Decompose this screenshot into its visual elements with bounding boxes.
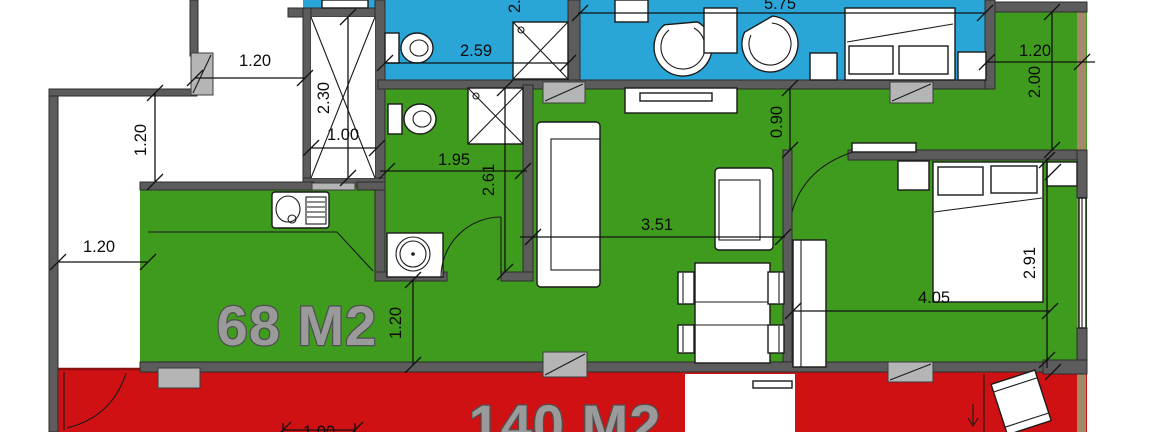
wall-kitchen-top-left — [140, 182, 314, 190]
dimension-label: 5.75 — [764, 0, 796, 13]
dimension-label: 1.95 — [438, 151, 470, 169]
basin-drain — [411, 252, 415, 256]
terrace-bench — [753, 381, 792, 388]
washbasin — [387, 233, 443, 277]
dining-table — [695, 263, 770, 363]
wall-bath-b-jamb — [501, 272, 533, 281]
sink-top-sliver — [322, 0, 368, 8]
window-sill-living-south — [543, 352, 587, 377]
toilet — [385, 33, 433, 63]
dimension-left-height: 1.20 — [132, 85, 163, 190]
dimension-label: 4.05 — [918, 289, 950, 307]
bed-b — [933, 162, 1043, 302]
armchair — [715, 168, 773, 250]
dimension-label: 2. — [506, 0, 524, 13]
pillow — [991, 166, 1037, 193]
dimension-label: 3.51 — [641, 216, 673, 234]
window-sill-dining-south — [888, 362, 933, 382]
door-leaf — [852, 143, 916, 152]
door-threshold-living — [543, 82, 585, 103]
tv-stand — [625, 88, 737, 113]
dining-chair — [678, 325, 694, 353]
tv-screen — [640, 93, 712, 101]
wardrobe — [793, 240, 826, 367]
toilet — [388, 104, 436, 134]
wall-top-stub — [190, 0, 198, 56]
area-label-terrace: 140 M2 — [469, 393, 662, 432]
wall-top-left — [49, 89, 197, 96]
nightstand-right — [958, 52, 986, 80]
dimension-label: 1.20 — [1019, 42, 1051, 60]
nightstand-left — [810, 53, 837, 80]
toilet-tank — [385, 33, 399, 63]
nightstand-left — [898, 161, 929, 190]
dimension-label: 2.00 — [1026, 66, 1044, 98]
pillow — [938, 167, 983, 195]
wall-left-outer — [49, 89, 58, 432]
side-table — [704, 8, 737, 53]
dining-chair — [768, 325, 784, 353]
dimension-label: 1.20 — [387, 307, 405, 339]
dimension-label: 0.90 — [768, 106, 786, 138]
wall-kitchen-top-right — [357, 182, 385, 190]
pillow — [849, 46, 893, 74]
wall-right-stub-top — [1077, 150, 1087, 198]
floor-plan-svg: 1.20 1.20 2.30 1.00 2.59 2. 5.75 1.95 — [0, 0, 1172, 432]
bed-a — [845, 8, 955, 80]
sofa — [537, 122, 600, 287]
console-table — [615, 0, 648, 22]
kitchen-sink — [272, 192, 329, 228]
floor-plan: 1.20 1.20 2.30 1.00 2.59 2. 5.75 1.95 — [0, 0, 1172, 432]
dining-chair — [678, 272, 694, 304]
sofa-body — [537, 122, 600, 287]
dimension-label: 1.20 — [83, 238, 115, 256]
toilet-tank — [388, 104, 402, 134]
dimension-label: 2.61 — [480, 164, 498, 196]
dimension-label: 2.91 — [1021, 247, 1039, 279]
area-label-green-unit: 68 M2 — [217, 294, 378, 357]
window-bedroom-right — [1079, 198, 1086, 328]
shower — [468, 88, 523, 144]
wall-top-right — [995, 2, 1087, 12]
dining-chair — [768, 272, 784, 304]
dimension-label: 1.00 — [327, 126, 359, 144]
wall-bottom-right-corner — [1043, 360, 1087, 374]
dimension-bath-a-height-partial: 2. — [506, 0, 524, 13]
pillow — [899, 46, 948, 74]
wall-bottom — [140, 362, 1087, 372]
wall-shaft-right — [375, 0, 385, 281]
wall-bath-b-right — [523, 85, 533, 281]
dimension-label: 1.20 — [132, 124, 150, 156]
door-sill-kitchen — [312, 183, 355, 190]
dimension-label: 1.00 — [303, 423, 335, 432]
dimension-label: 2.30 — [315, 82, 333, 114]
door-sill-terrace — [158, 368, 200, 388]
dimension-label: 1.20 — [239, 52, 271, 70]
dimension-label: 2.59 — [460, 42, 492, 60]
wardrobe-body — [793, 240, 826, 367]
wall-shaft-left — [303, 8, 311, 186]
door-threshold-bedroom-a — [890, 82, 933, 103]
window-sill-top-left — [191, 53, 213, 95]
